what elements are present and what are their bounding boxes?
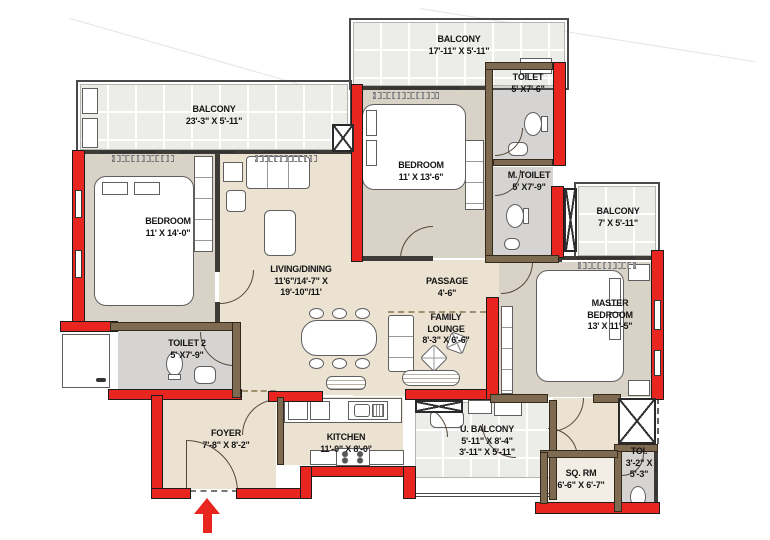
label-toilet: TOILET 5' X7'-6" [511,72,544,95]
pillow-icon [366,140,377,166]
wall [485,62,553,70]
wall [403,466,416,499]
label-bedroom-mid: BEDROOM 11' X 13'-6" [398,160,444,183]
window-icon [75,250,82,278]
wall [108,389,242,400]
wall [493,159,553,166]
chair-icon [309,358,324,369]
label-toi: TOI. 3'-2" X 5'-3" [626,446,653,481]
label-balcony-top-left: BALCONY 23'-3" X 5'-11" [186,104,242,127]
wardrobe-icon [465,140,484,210]
washbasin-icon [194,366,216,384]
dining-table-icon [301,320,377,356]
chair-icon [355,358,370,369]
wc-tank [523,208,529,224]
washbasin-icon [504,238,520,250]
wall [486,297,499,400]
wall [110,322,240,331]
wall [485,255,559,263]
window-icon [575,257,635,259]
wc-tank [541,116,548,132]
window-icon [654,300,661,330]
column-x-icon [332,124,354,152]
sofa-icon [388,315,414,372]
chair-icon [355,308,370,319]
wall [551,186,564,258]
chair-icon [332,308,347,319]
label-toilet-2: TOILET 2 5' X7'-9" [168,338,206,361]
label-family-lounge: FAMILY LOUNGE 8'-3" X 6'-6" [422,312,469,347]
label-sq-rm: SQ. RM 6'-6" X 6'-7" [557,468,604,491]
wall [277,397,284,465]
label-kitchen: KITCHEN 11'-0" X 8'-0" [320,432,372,455]
label-u-balcony: U. BALCONY 5'-11" X 8'-4" 3'-11" X 5'-11… [459,424,515,459]
rug-icon [402,370,460,386]
wall [151,488,191,499]
wardrobe-icon [194,156,213,252]
bed-icon [94,176,194,306]
counter-module [288,401,308,420]
curtain-icon [578,262,636,269]
pillow-icon [134,182,160,195]
pillow-icon [366,110,377,136]
entry-arrow-stem [203,513,212,533]
wall [311,466,415,477]
wall [535,502,660,514]
wall [405,389,490,400]
entry-arrow-icon [194,498,220,514]
wc-tank [168,374,181,380]
utility-box [468,400,492,414]
window-icon [655,482,657,496]
wall [490,394,548,403]
nightstand-icon [628,380,650,396]
coffee-table-icon [264,210,296,256]
label-balcony-top-mid: BALCONY 17'-11" X 5'-11" [429,34,490,57]
window-icon [180,151,235,153]
wall [540,450,618,458]
partition-wall [215,152,220,272]
label-living-dining: LIVING/DINING 11'6"/14'-7" X 19'-10"/11' [270,264,331,299]
planter-box [82,88,98,114]
shaft-x-icon [618,398,656,444]
chair-icon [309,308,324,319]
curtain-icon [255,155,317,162]
window-x-icon [564,188,577,252]
wardrobe-icon [501,306,513,394]
wall [540,452,548,504]
chair-icon [332,358,347,369]
label-balcony-right: BALCONY 7' X 5'-11" [596,206,639,229]
window-icon [100,151,155,153]
window-icon [75,190,82,218]
partition-wall [363,256,433,261]
curtain-icon [373,92,439,99]
window-icon [655,460,657,474]
label-m-toilet: M. TOILET 5' X7'-9" [508,170,551,193]
label-bedroom-left: BEDROOM 11' X 14'-0" [145,216,191,239]
armchair-icon [226,190,246,212]
curtain-icon [112,155,174,162]
faucet-icon [96,378,106,382]
wall [151,395,163,499]
entry-threshold [190,490,238,492]
pillow-icon [102,182,128,195]
sink-basin [354,404,370,417]
floor-plan: BALCONY 23'-3" X 5'-11" BALCONY 17'-11" … [0,0,770,540]
sink-drainboard [372,404,384,417]
planter-box [82,118,98,148]
wc-icon [506,204,524,228]
wall [232,322,241,398]
shaft-dashed-edge [657,398,659,444]
counter-module [310,401,330,420]
label-passage: PASSAGE 4'-6" [426,276,468,299]
bench-icon [326,376,366,390]
wall [351,84,363,262]
wall [485,62,493,263]
window-icon [654,350,661,376]
window-x-icon [415,400,463,413]
window-icon [262,151,317,153]
wc-icon [524,112,542,136]
wall [553,62,566,166]
wall [72,150,85,330]
wall [593,394,621,403]
side-table-icon [223,162,243,182]
window-icon [380,87,460,89]
label-foyer: FOYER 7'-8" X 8'-2" [202,428,249,451]
u-balcony-edge [408,493,556,497]
label-master-bedroom: MASTER BEDROOM 13' X 11'-5" [587,298,633,333]
